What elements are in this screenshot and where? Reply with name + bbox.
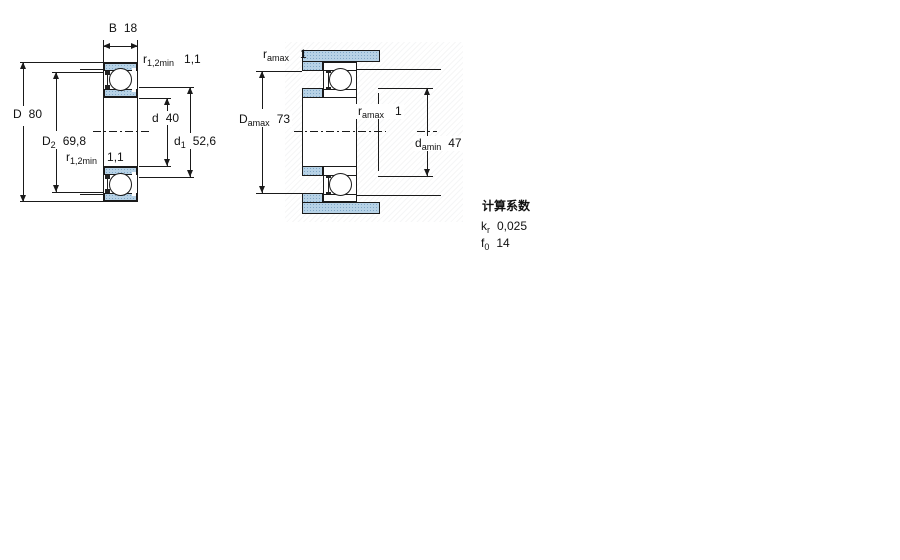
arrowhead-icon: [187, 87, 193, 94]
center-line: [294, 131, 386, 132]
dim-D-value: 80: [29, 107, 42, 121]
dim-D: D 80: [11, 107, 44, 121]
dimension-line: [427, 88, 428, 176]
bearing-section-top: [103, 62, 138, 98]
bearing-dimension-drawing: B 18 D 80: [0, 0, 900, 560]
dim-ramax-top: ramax 1: [261, 47, 309, 62]
dim-r12-subscript: 1,2min: [147, 56, 174, 70]
cage: [326, 87, 331, 89]
dim-ramax-value: 1: [395, 104, 402, 118]
extension-line: [20, 62, 103, 63]
dim-ramax-subscript: amax: [267, 51, 289, 65]
dim-d-value: 40: [166, 111, 179, 125]
dim-r12-value: 1,1: [107, 150, 124, 164]
arrowhead-icon: [53, 185, 59, 192]
dimension-line: [262, 127, 263, 193]
factor-kr-subscript: r: [487, 223, 490, 237]
extension-line: [52, 72, 103, 73]
dim-d1-symbol: d: [174, 134, 181, 148]
center-line: [93, 131, 149, 132]
factor-f0-subscript: 0: [484, 240, 489, 254]
recess-line: [80, 194, 103, 195]
arrowhead-icon: [259, 186, 265, 193]
seal-groove-notch: [132, 68, 136, 71]
recess-line: [80, 69, 103, 70]
shaft-shoulder-top: [302, 88, 323, 98]
arrowhead-icon: [424, 88, 430, 95]
dim-D2-symbol: D: [42, 134, 51, 148]
extension-line: [256, 193, 302, 194]
arrowhead-icon: [103, 43, 110, 49]
shaft-shoulder-bottom: [302, 166, 323, 176]
dim-damin-subscript: amin: [422, 140, 442, 154]
seal: [105, 85, 110, 89]
mounted-bearing-section-top: [323, 62, 357, 98]
seal-groove-notch: [132, 172, 136, 175]
extension-line: [139, 166, 171, 167]
dimension-line: [56, 72, 57, 131]
dim-Damax: Damax 73: [237, 112, 292, 127]
dim-D2-value: 69,8: [63, 134, 86, 148]
dim-ramax-subscript: amax: [362, 108, 384, 122]
calculation-factors-title: 计算系数: [482, 197, 530, 214]
extension-line: [20, 201, 103, 202]
dim-ramax-value: 1: [300, 47, 307, 61]
dim-Damax-value: 73: [277, 112, 290, 126]
fillet-line: [357, 69, 441, 70]
shaft-body: [302, 98, 357, 166]
dim-d1-value: 52,6: [193, 134, 216, 148]
extension-line: [52, 192, 103, 193]
dim-d1: d1 52,6: [172, 134, 218, 149]
housing-shoulder-top: [302, 61, 323, 71]
dim-B-symbol: B: [109, 21, 117, 35]
ball: [109, 173, 132, 196]
dim-Damax-subscript: amax: [248, 116, 270, 130]
seal-groove-notch: [132, 89, 136, 92]
dim-damin-symbol: d: [415, 136, 422, 150]
ball: [329, 173, 352, 196]
extension-line: [139, 177, 194, 178]
dim-B: B 18: [99, 21, 147, 35]
dim-damin: damin 47: [413, 136, 464, 151]
dim-d1-subscript: 1: [181, 138, 186, 152]
dim-r12-top: r1,2min 1,1: [141, 52, 203, 67]
dim-r12-value: 1,1: [184, 52, 201, 66]
fillet-line: [357, 195, 441, 196]
mounted-bearing-section-bottom: [323, 166, 357, 202]
arrowhead-icon: [164, 98, 170, 105]
dim-damin-value: 47: [448, 136, 461, 150]
ball: [329, 68, 352, 91]
dim-ramax-mid: ramax 1: [356, 104, 404, 119]
seal-groove-notch: [132, 193, 136, 196]
dimension-line: [23, 126, 24, 202]
arrowhead-icon: [20, 195, 26, 202]
arrowhead-icon: [131, 43, 138, 49]
dim-D2-subscript: 2: [51, 138, 56, 152]
arrowhead-icon: [424, 169, 430, 176]
factor-f0: f0 14: [479, 236, 512, 251]
dim-d-symbol: d: [152, 111, 159, 125]
dim-r12-subscript: 1,2min: [70, 154, 97, 168]
arrowhead-icon: [53, 72, 59, 79]
dim-D2: D2 69,8: [40, 134, 88, 149]
housing-section-bottom: [302, 202, 380, 214]
dim-D-symbol: D: [13, 107, 22, 121]
dim-d: d 40: [150, 111, 181, 125]
factor-kr-value: 0,025: [497, 219, 527, 233]
dim-r12-bottom: r1,2min 1,1: [64, 150, 126, 165]
ball: [109, 68, 132, 91]
seal: [105, 189, 110, 193]
arrowhead-icon: [259, 71, 265, 78]
arrowhead-icon: [164, 159, 170, 166]
arrowhead-icon: [20, 62, 26, 69]
factor-kr: kr 0,025: [479, 219, 529, 234]
arrowhead-icon: [187, 170, 193, 177]
factor-f0-value: 14: [496, 236, 509, 250]
bearing-section-bottom: [103, 166, 138, 202]
dim-Damax-symbol: D: [239, 112, 248, 126]
cage: [326, 71, 331, 73]
extension-line: [378, 176, 433, 177]
dim-B-value: 18: [124, 21, 137, 35]
cage: [326, 192, 331, 194]
cage: [326, 176, 331, 178]
extension-line: [139, 87, 194, 88]
